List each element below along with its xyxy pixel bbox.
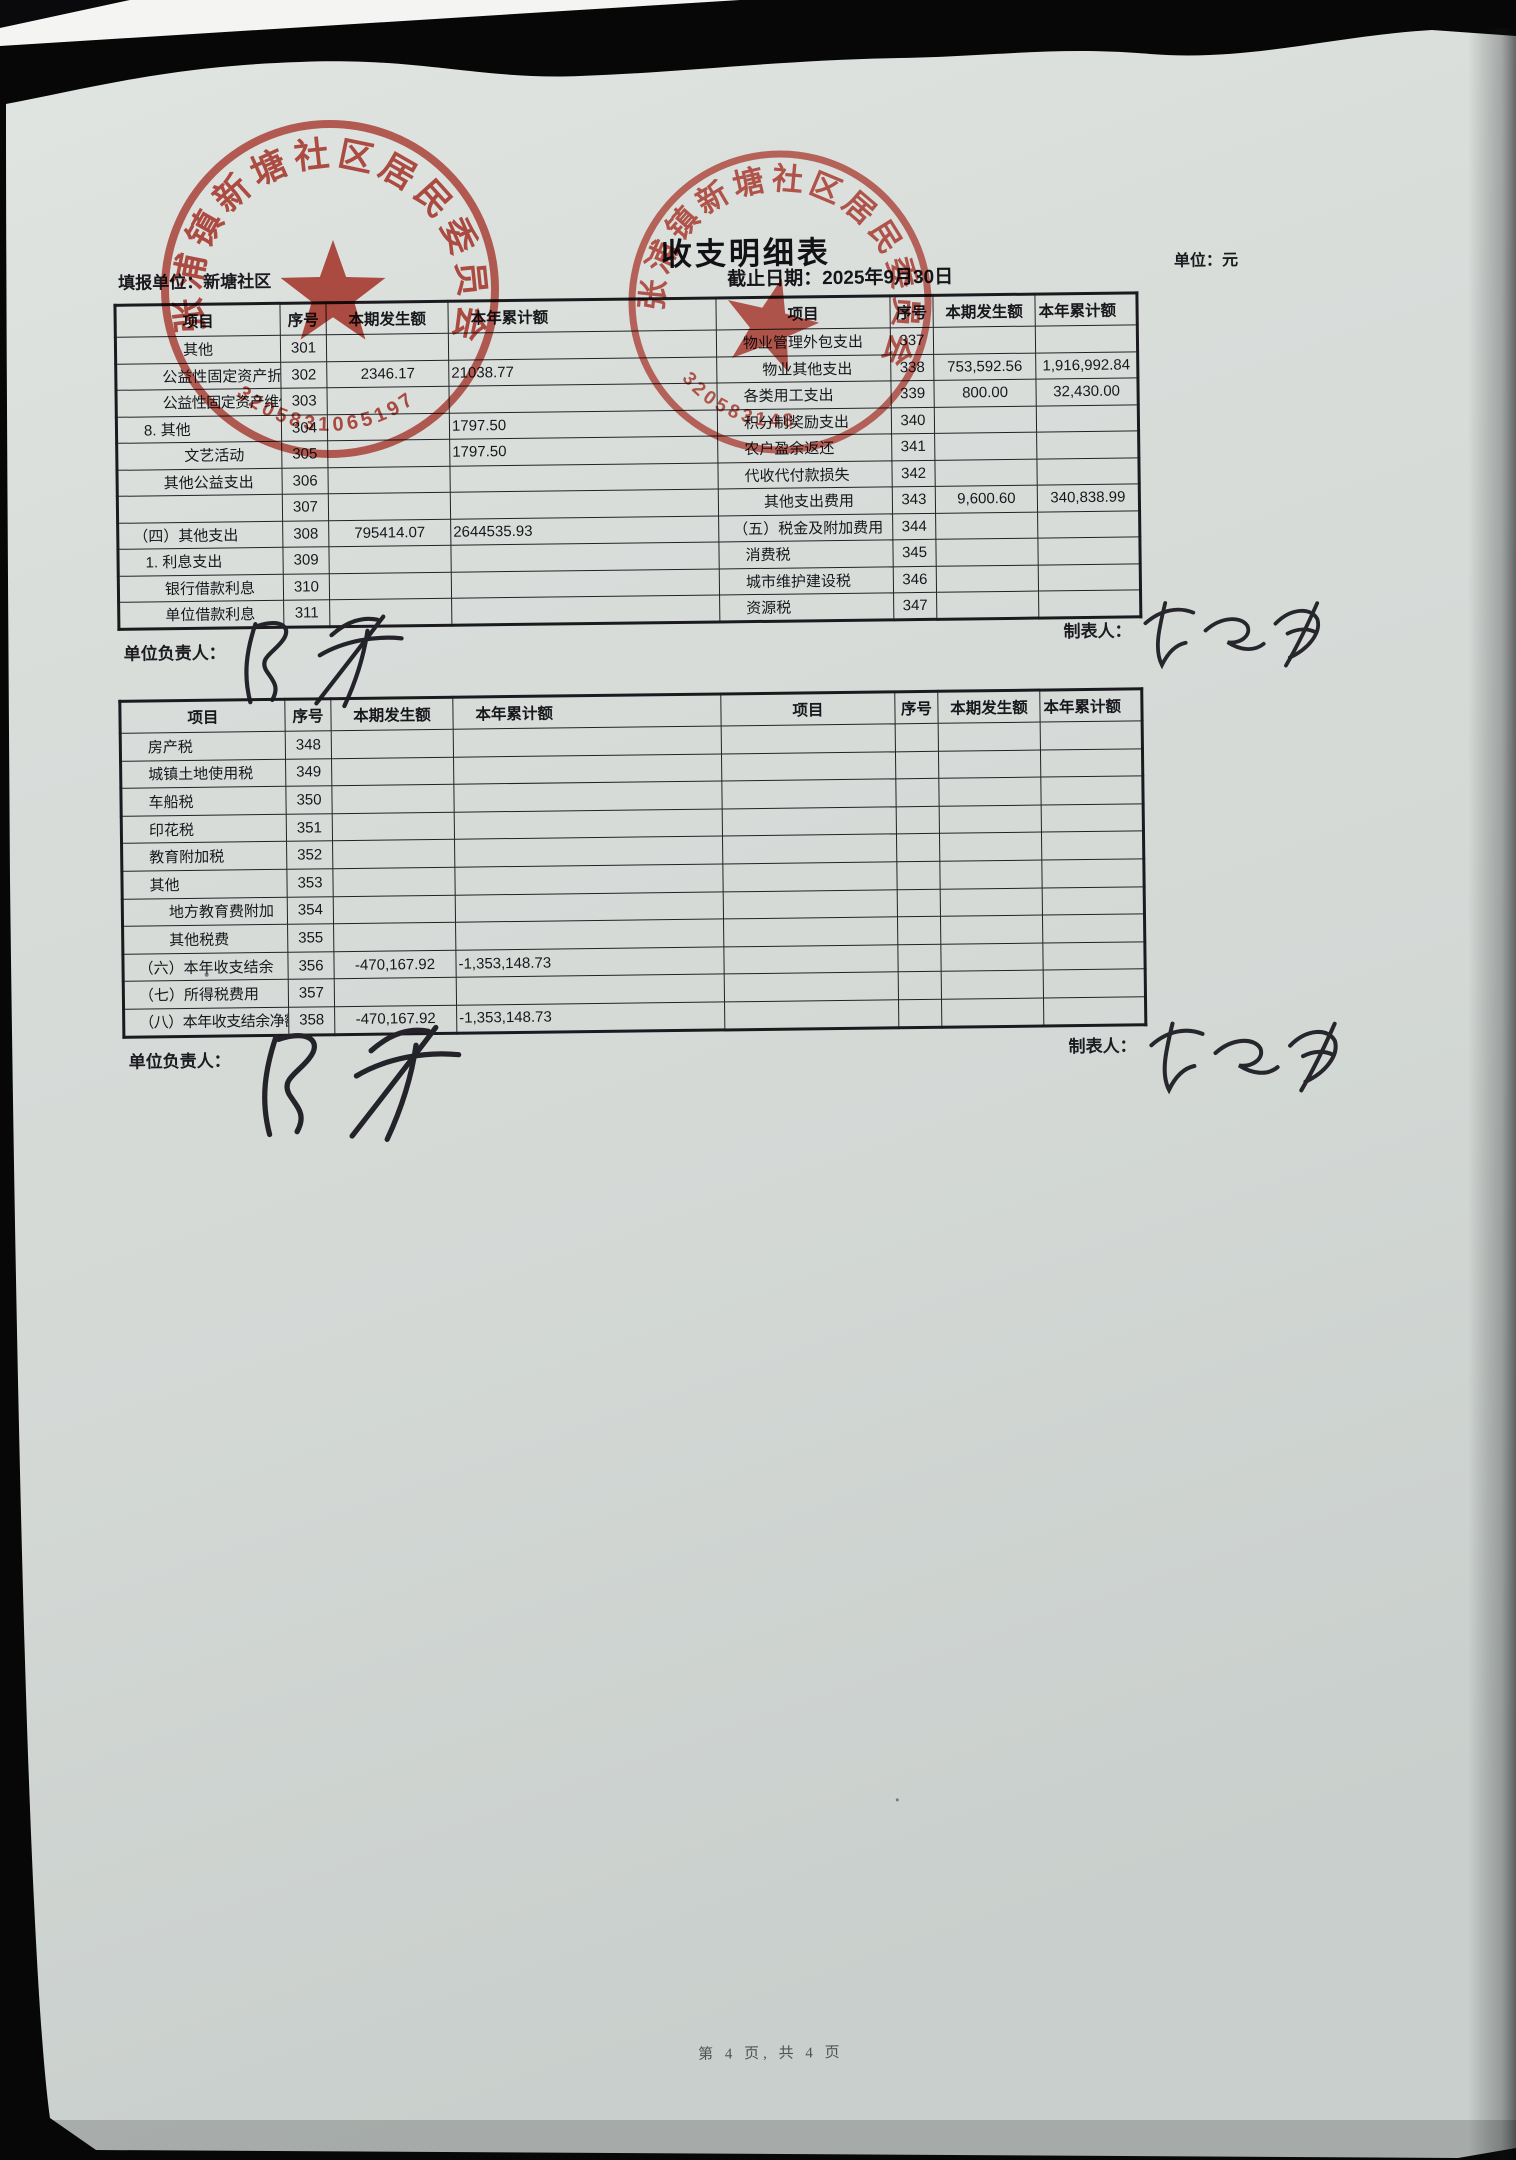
cell-amount2: 800.00 (934, 379, 1036, 407)
cell-cumulative (452, 595, 720, 625)
cell-seq2 (898, 972, 941, 1000)
cell-cumulative2 (1043, 997, 1145, 1026)
cell-seq2: 345 (893, 539, 936, 566)
cell-seq2: 341 (892, 433, 935, 460)
cell-seq: 349 (286, 758, 332, 786)
cell-seq2 (895, 723, 938, 751)
cell-seq2 (899, 999, 942, 1027)
cell-seq: 305 (282, 441, 328, 468)
cell-amount2 (937, 591, 1039, 619)
cell-cumulative2 (1041, 831, 1143, 860)
cell-label: 房产税 (120, 731, 285, 761)
cell-amount (328, 466, 450, 494)
cell-cumulative (451, 542, 719, 572)
cell-seq: 351 (286, 813, 332, 841)
cell-amount (333, 895, 455, 924)
cell-label2 (724, 945, 898, 975)
cell-seq: 357 (288, 979, 334, 1007)
cell-seq2 (897, 916, 940, 944)
cell-cumulative2 (1040, 748, 1142, 777)
cell-cumulative2 (1043, 969, 1145, 998)
cell-label2 (722, 779, 896, 809)
cell-amount2: 753,592.56 (934, 353, 1036, 381)
col-header-seq: 序号 (895, 691, 938, 724)
cell-cumulative2 (1038, 563, 1140, 591)
cell-cumulative (454, 781, 722, 812)
cell-seq: 307 (282, 494, 328, 521)
cell-seq2 (898, 944, 941, 972)
cell-cumulative (455, 864, 723, 895)
cell-cumulative2 (1041, 804, 1143, 833)
col-header-period: 本期发生额 (933, 294, 1035, 327)
cell-label2: 农户盈余返还 (718, 434, 892, 463)
cell-seq2: 346 (893, 566, 936, 593)
cell-amount: -470,167.92 (334, 950, 456, 979)
cell-label2: 资源税 (720, 593, 894, 622)
cell-amount2 (935, 459, 1037, 487)
cell-cumulative2 (1039, 590, 1141, 618)
cell-amount (327, 386, 449, 414)
cell-seq2 (897, 889, 940, 917)
cell-amount2 (938, 722, 1040, 751)
responsible-person-label: 单位负责人： (124, 639, 226, 665)
cell-label: 车船税 (121, 786, 286, 816)
cell-cumulative: 1797.50 (450, 436, 718, 466)
cell-label: 印花税 (121, 814, 286, 844)
cell-label2 (722, 834, 896, 864)
unit-value: 元 (1222, 252, 1238, 269)
cell-cumulative (450, 462, 718, 492)
cell-cumulative (456, 974, 724, 1005)
cell-label2 (725, 1000, 899, 1030)
preparer-label: 制表人： (1063, 616, 1131, 642)
cell-cumulative2 (1036, 404, 1138, 432)
cell-amount2 (940, 860, 1042, 889)
cell-cumulative (453, 726, 721, 757)
cell-amount (327, 413, 449, 441)
cell-amount (329, 572, 451, 600)
cell-label2: 城市维护建设税 (719, 566, 893, 595)
cell-seq: 353 (287, 869, 333, 897)
cell-label: 其他 (115, 335, 280, 364)
cell-seq: 350 (286, 786, 332, 814)
cell-amount: 2346.17 (327, 360, 449, 388)
cell-cumulative2 (1038, 537, 1140, 565)
unit-label: 单位： (1174, 252, 1222, 270)
cell-seq2 (895, 751, 938, 779)
cell-label2 (723, 862, 897, 892)
cell-cumulative2 (1042, 914, 1144, 943)
cell-label: 1. 利息支出 (118, 547, 283, 576)
cell-label2: （五）税金及附加费用 (719, 513, 893, 542)
col-header-seq: 序号 (280, 303, 326, 336)
cell-label2 (724, 972, 898, 1002)
cell-label: 其他公益支出 (117, 468, 282, 497)
cell-cumulative2: 340,838.99 (1037, 484, 1139, 512)
col-header-ytd: 本年累计额 (448, 298, 716, 333)
expense-table-lower: 项目 序号 本期发生额 本年累计额 项目 序号 本期发生额 本年累计额 房产税3… (118, 687, 1147, 1038)
cell-label: 公益性固定资产折旧 (116, 362, 281, 391)
col-header-seq: 序号 (890, 295, 933, 328)
cell-amount2 (939, 832, 1041, 861)
cell-cumulative (455, 836, 723, 867)
cell-cumulative2 (1035, 325, 1137, 353)
responsible-person-signature (248, 1019, 500, 1147)
cell-amount2 (936, 512, 1038, 540)
cell-label2: 消费税 (719, 540, 893, 569)
cell-label2: 积分制奖励支出 (717, 407, 891, 436)
cell-label (117, 494, 282, 523)
cell-cumulative2 (1043, 942, 1145, 971)
cell-amount2 (939, 777, 1041, 806)
cell-label2 (722, 807, 896, 837)
col-header-ytd: 本年累计额 (453, 694, 721, 729)
cell-cumulative2 (1042, 859, 1144, 888)
cell-seq2: 347 (894, 592, 937, 619)
cell-label: 公益性固定资产维修（护） (116, 388, 281, 417)
cell-cumulative (450, 489, 718, 519)
scanned-document-photo: 收支明细表 填报单位：新塘社区 截止日期：2025年9月30日 单位：元 项目 … (0, 0, 1516, 2160)
form-content: 收支明细表 填报单位：新塘社区 截止日期：2025年9月30日 单位：元 项目 … (0, 0, 1516, 2160)
cell-amount (332, 812, 454, 841)
cell-label2 (723, 889, 897, 919)
cell-label: （四）其他支出 (118, 521, 283, 550)
cell-amount2 (934, 406, 1036, 434)
cell-label2: 代收代付款损失 (718, 460, 892, 489)
cell-seq2: 338 (891, 354, 934, 381)
cell-label: 8. 其他 (116, 415, 281, 444)
col-header-period: 本期发生额 (938, 690, 1040, 723)
cell-seq: 352 (287, 841, 333, 869)
cell-amount2 (938, 750, 1040, 779)
preparer-signature (1140, 1010, 1376, 1109)
cell-amount (332, 784, 454, 813)
cell-cumulative2: 32,430.00 (1036, 378, 1138, 406)
cell-amount (328, 492, 450, 520)
col-header-ytd: 本年累计额 (1035, 293, 1137, 326)
col-header-item: 项目 (716, 296, 890, 330)
cell-label: 地方教育费附加 (122, 897, 287, 927)
cell-cumulative: 1797.50 (449, 409, 717, 439)
col-header-item: 项目 (120, 699, 285, 733)
cell-amount2 (942, 998, 1044, 1027)
cell-label: （七）所得税费用 (123, 980, 288, 1010)
cell-amount (333, 867, 455, 896)
cell-seq: 306 (282, 467, 328, 494)
cell-label2: 其他支出费用 (718, 487, 892, 516)
cell-cumulative2 (1040, 721, 1142, 750)
cell-seq: 348 (285, 731, 331, 759)
cell-seq: 301 (280, 335, 326, 362)
cell-amount2 (939, 805, 1041, 834)
cell-cumulative2: 1,916,992.84 (1036, 351, 1138, 379)
cell-seq2: 340 (891, 407, 934, 434)
cell-seq2 (896, 834, 939, 862)
cell-amount (333, 840, 455, 869)
cell-amount2: 9,600.60 (935, 485, 1037, 513)
cell-seq: 309 (283, 547, 329, 574)
cell-seq: 308 (283, 520, 329, 547)
cell-cumulative: 2644535.93 (451, 515, 719, 545)
unit-line: 单位：元 (1174, 246, 1238, 271)
col-header-seq: 序号 (285, 699, 331, 732)
cell-cumulative (451, 568, 719, 598)
speck (205, 973, 209, 977)
cell-cumulative2 (1042, 886, 1144, 915)
report-unit-value: 新塘社区 (203, 272, 271, 292)
col-header-period: 本期发生额 (326, 301, 448, 334)
speck (896, 1798, 899, 1801)
cell-label2 (721, 724, 895, 754)
cell-label: 其他税费 (123, 924, 288, 954)
cell-seq2 (897, 861, 940, 889)
cell-amount2 (940, 888, 1042, 917)
cell-cumulative2 (1037, 431, 1139, 459)
cell-label2: 物业其他支出 (717, 354, 891, 383)
cell-cumulative (449, 383, 717, 413)
cell-amount2 (936, 565, 1038, 593)
col-header-item: 项目 (721, 692, 895, 726)
cell-cumulative (448, 330, 716, 360)
cell-label: 文艺活动 (117, 441, 282, 470)
cell-seq2: 344 (893, 513, 936, 540)
cell-label: 其他 (122, 869, 287, 899)
cell-cumulative (454, 809, 722, 840)
cell-label2 (724, 917, 898, 947)
cell-label2: 各类用工支出 (717, 381, 891, 410)
cell-amount (328, 439, 450, 467)
cell-cumulative: -1,353,148.73 (456, 947, 724, 978)
preparer-signature (1135, 591, 1356, 684)
cell-amount2 (940, 915, 1042, 944)
deadline-value: 2025年9月30日 (822, 267, 953, 290)
cell-seq: 304 (281, 414, 327, 441)
cell-amount2 (936, 538, 1038, 566)
cell-cumulative: 21038.77 (449, 356, 717, 386)
cell-seq2: 339 (891, 380, 934, 407)
cell-cumulative2 (1041, 776, 1143, 805)
cell-amount (332, 757, 454, 786)
cell-seq2: 337 (890, 327, 933, 354)
cell-amount (331, 729, 453, 758)
cell-amount2 (941, 943, 1043, 972)
cell-seq: 356 (288, 951, 334, 979)
cell-amount2 (941, 970, 1043, 999)
cell-label: 银行借款利息 (118, 574, 283, 603)
cell-amount (326, 333, 448, 361)
cell-label2 (721, 751, 895, 781)
report-unit-line: 填报单位：新塘社区 (118, 267, 271, 294)
cell-seq: 355 (288, 924, 334, 952)
cell-amount (334, 978, 456, 1007)
cell-seq: 303 (281, 388, 327, 415)
cell-seq2 (896, 778, 939, 806)
cell-label: （六）本年收支结余 (123, 952, 288, 982)
cell-seq: 310 (283, 573, 329, 600)
cell-seq: 354 (287, 896, 333, 924)
cell-label: 城镇土地使用税 (121, 759, 286, 789)
cell-amount (329, 545, 451, 573)
cell-seq: 302 (281, 361, 327, 388)
cell-label: 教育附加税 (122, 842, 287, 872)
col-header-period: 本期发生额 (331, 697, 453, 730)
cell-amount2 (935, 432, 1037, 460)
cell-label2: 物业管理外包支出 (716, 328, 890, 357)
cell-amount: 795414.07 (329, 519, 451, 547)
cell-seq2: 342 (892, 460, 935, 487)
report-unit-label: 填报单位： (118, 273, 203, 293)
col-header-ytd: 本年累计额 (1040, 689, 1142, 722)
cell-amount2 (933, 326, 1035, 354)
page-number-footer: 第 4 页, 共 4 页 (13, 2033, 1516, 2073)
cell-cumulative (456, 919, 724, 950)
cell-cumulative2 (1037, 457, 1139, 485)
preparer-label: 制表人： (1068, 1031, 1136, 1057)
expense-table-upper: 项目 序号 本期发生额 本年累计额 项目 序号 本期发生额 本年累计额 其他30… (113, 291, 1142, 630)
deadline-label: 截止日期： (727, 268, 822, 290)
cell-cumulative2 (1038, 510, 1140, 538)
responsible-person-label: 单位负责人： (129, 1046, 231, 1072)
cell-cumulative (454, 754, 722, 785)
cell-amount (334, 922, 456, 951)
col-header-item: 项目 (115, 303, 280, 337)
cell-seq2 (896, 806, 939, 834)
deadline-line: 截止日期：2025年9月30日 (727, 262, 953, 292)
cell-seq2: 343 (892, 486, 935, 513)
cell-cumulative (455, 892, 723, 923)
